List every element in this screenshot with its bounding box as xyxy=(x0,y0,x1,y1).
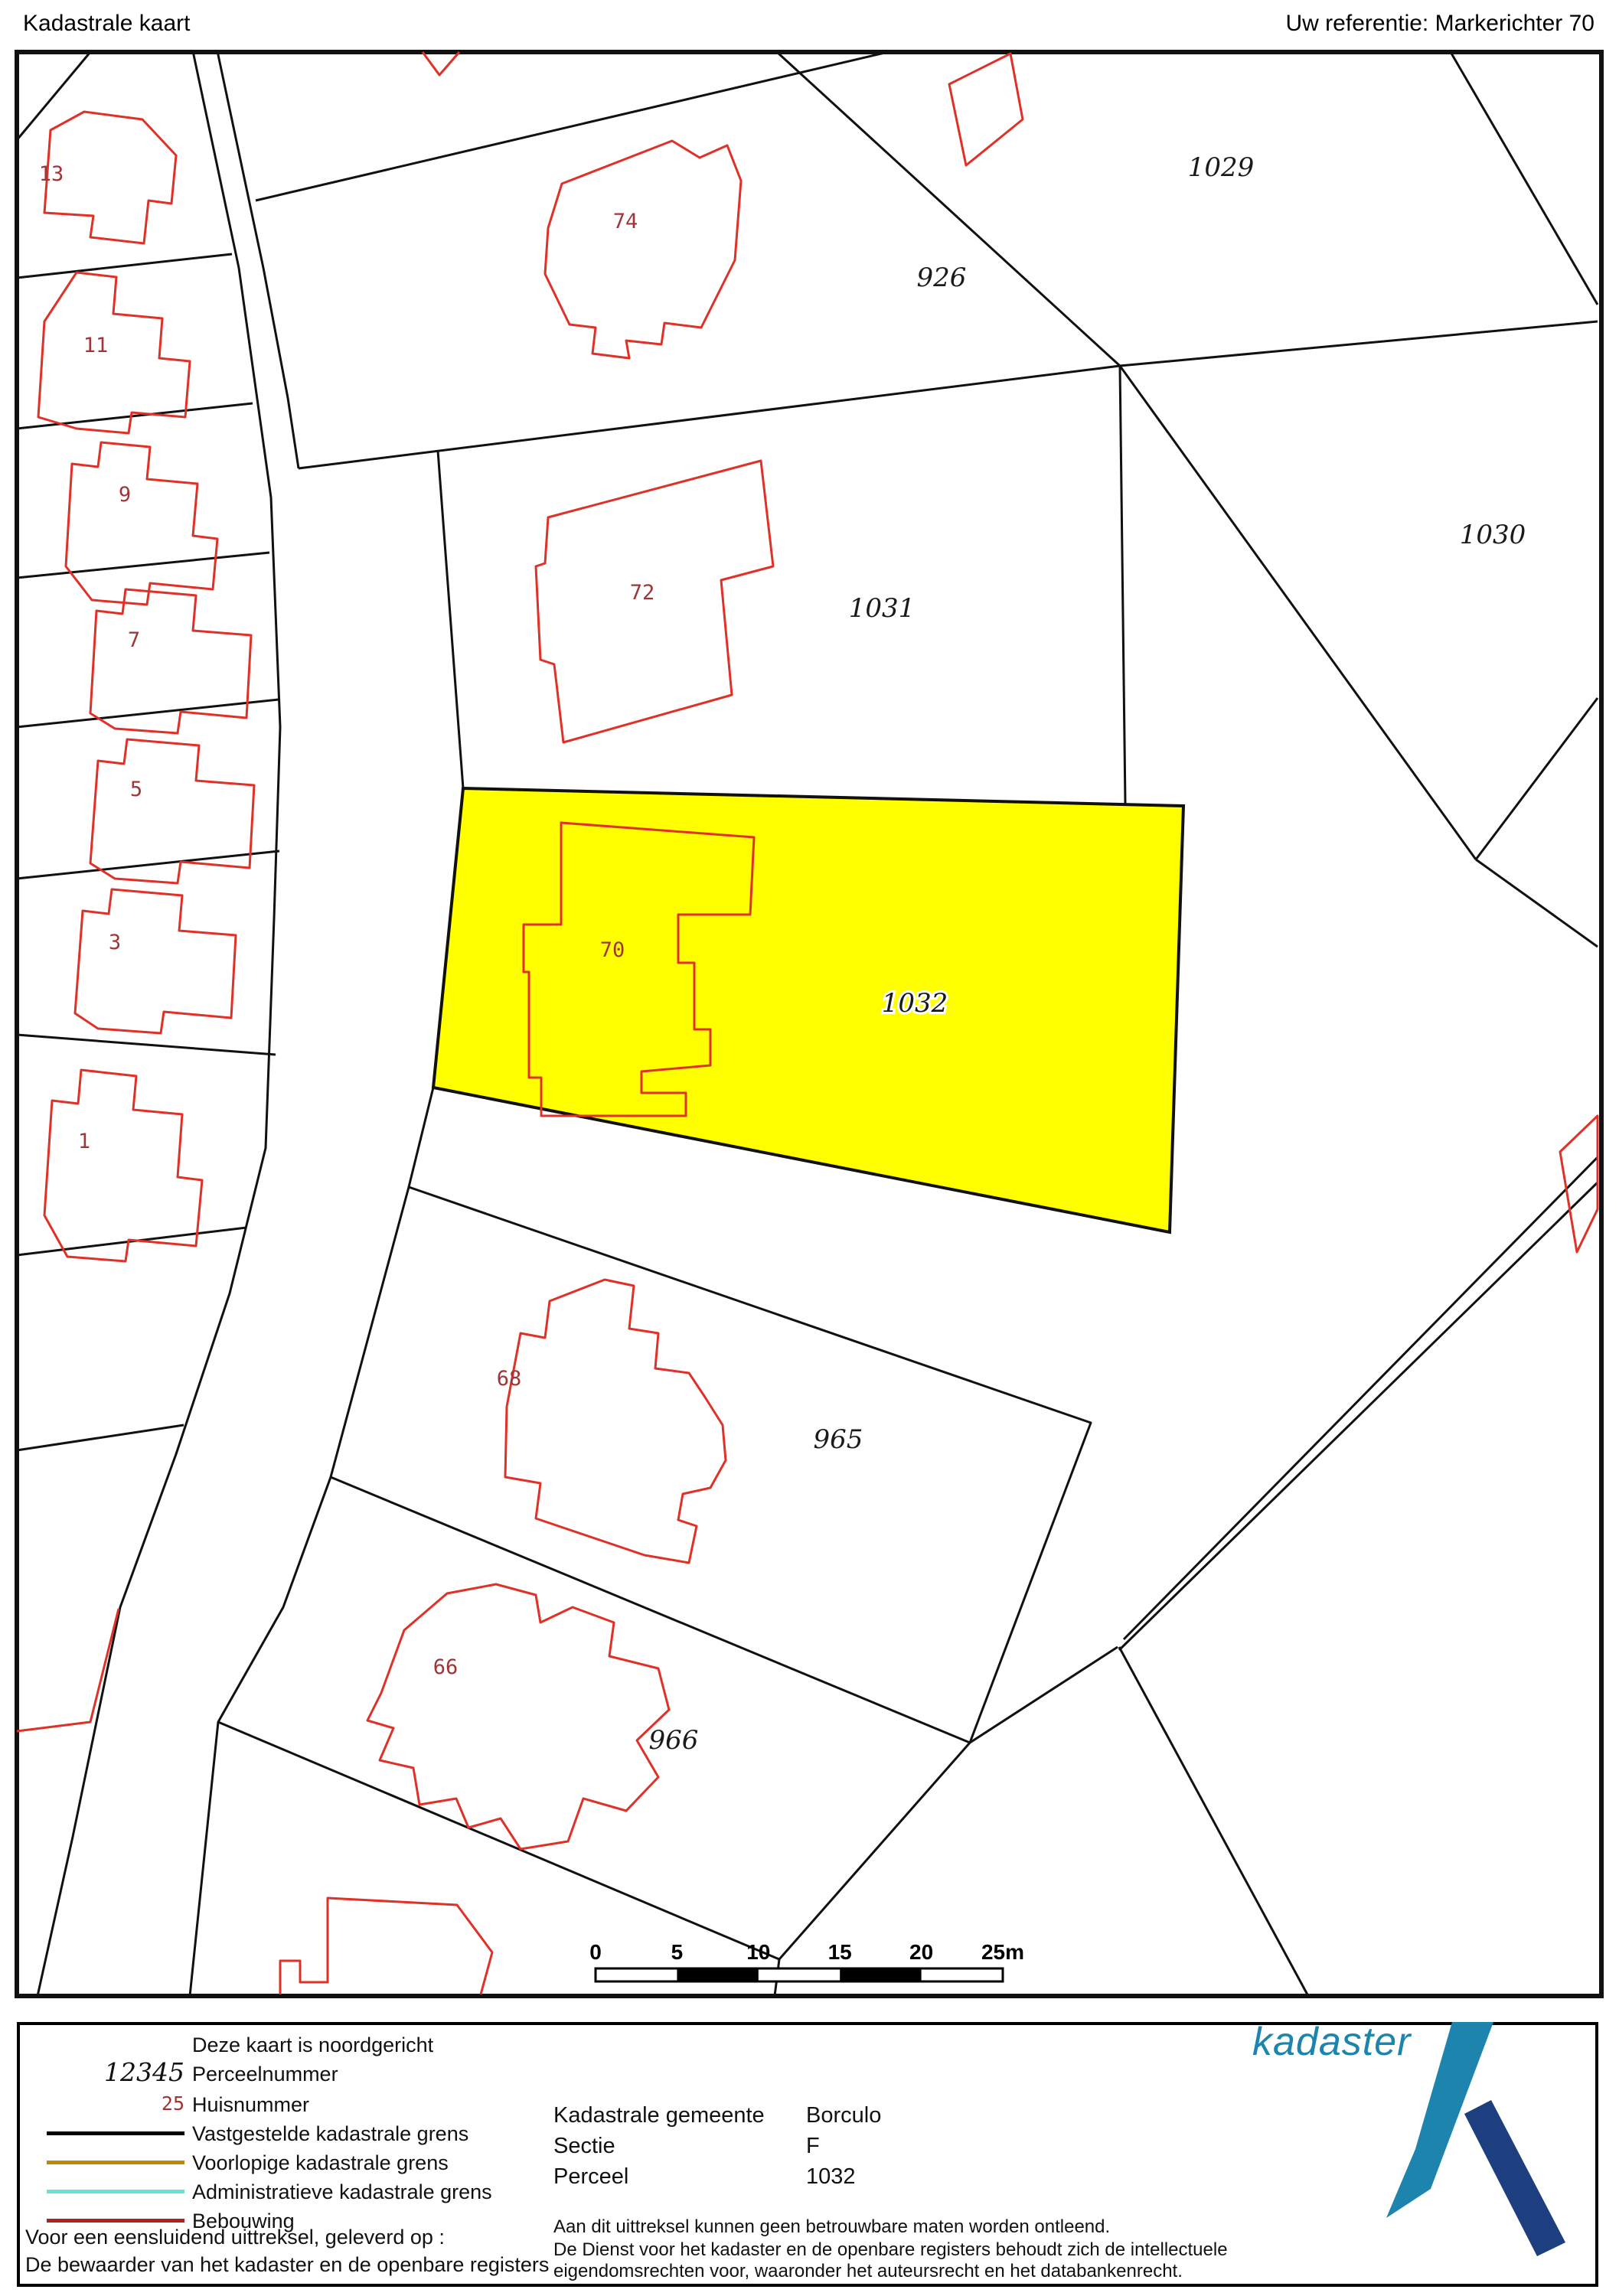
logo-pen-stroke-dark xyxy=(1464,2100,1565,2256)
kadaster-logo-icon xyxy=(0,0,1619,2296)
cadastral-map-page: Kadastrale kaart Uw referentie: Markeric… xyxy=(0,0,1619,2296)
